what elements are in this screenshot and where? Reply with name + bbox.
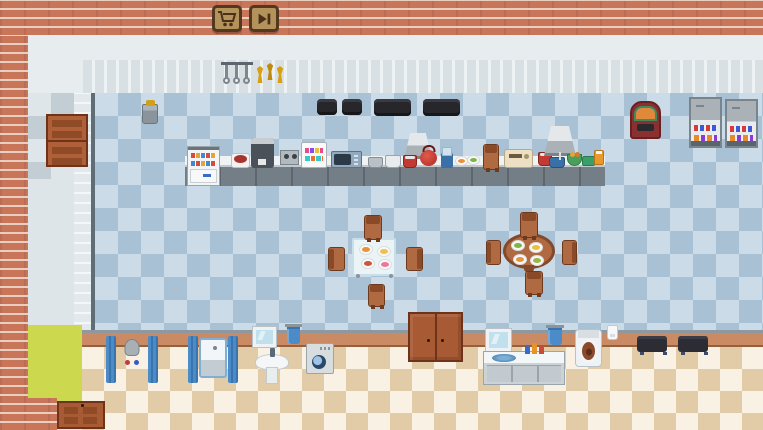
armchair-1[interactable] (317, 99, 337, 115)
shower-curtain (106, 336, 116, 383)
utensil-rack (221, 62, 253, 86)
plate-food (512, 241, 524, 250)
washing-machine[interactable] (306, 343, 334, 374)
plate-food (514, 255, 526, 264)
faucet (270, 348, 275, 357)
hall-double-door[interactable] (408, 312, 463, 362)
dining-table-square[interactable] (352, 238, 396, 276)
vending-machine-2[interactable] (725, 99, 758, 148)
shelf-items (191, 153, 216, 158)
trophy (266, 63, 274, 80)
pot-1[interactable] (368, 157, 383, 168)
pot-blue[interactable] (549, 157, 565, 168)
orange-jar[interactable] (594, 150, 604, 165)
jukebox[interactable] (630, 101, 661, 139)
bench-2[interactable] (678, 336, 708, 352)
mirror-1 (253, 327, 276, 347)
product-row (694, 125, 717, 131)
product-row (694, 135, 717, 141)
bathtub[interactable] (188, 336, 238, 383)
sofa-1[interactable] (374, 99, 411, 116)
ladle-head (223, 77, 230, 84)
pot-2[interactable] (385, 155, 401, 168)
bread-maker[interactable] (504, 149, 533, 168)
trash-bin[interactable] (142, 104, 158, 124)
pot-red-1[interactable] (403, 155, 417, 168)
shelf-items (305, 156, 323, 161)
bath-curtain (228, 336, 238, 383)
vanity-sink (492, 354, 516, 362)
countertop-stove[interactable] (280, 150, 299, 165)
product-row (730, 126, 753, 132)
trophy (276, 66, 284, 83)
rice-cooker[interactable] (231, 153, 250, 168)
microwave[interactable] (331, 151, 362, 168)
dining-table-round[interactable] (503, 233, 555, 269)
toilet[interactable] (575, 329, 602, 367)
shower[interactable] (106, 336, 158, 383)
plate (456, 157, 467, 165)
blender[interactable] (441, 153, 453, 168)
chair-8[interactable] (525, 271, 543, 295)
red-kettle[interactable] (420, 150, 437, 166)
chair-7[interactable] (562, 240, 577, 265)
plate-food (360, 245, 372, 254)
plate-food (362, 259, 374, 268)
restaurant-scene (0, 0, 763, 430)
plate-food (378, 247, 390, 256)
bathroom-vanity[interactable] (483, 351, 565, 385)
toilet-paper (607, 325, 618, 340)
serving-plates (456, 155, 482, 168)
storage-door[interactable] (57, 401, 105, 429)
plate-food (379, 260, 391, 269)
chair-6[interactable] (486, 240, 501, 265)
chair-4[interactable] (368, 284, 385, 307)
coffee-machine[interactable] (251, 138, 274, 168)
product-row (730, 135, 753, 141)
towel-2 (548, 327, 562, 345)
bottle (539, 346, 544, 354)
bathroom-mirror (486, 329, 511, 351)
bottle (525, 345, 530, 354)
ladle-head (243, 77, 250, 84)
bath-curtain (188, 336, 198, 383)
ladle-head (233, 77, 240, 84)
sofa-2[interactable] (423, 99, 460, 116)
plate-food (531, 256, 543, 265)
entity-layer (0, 0, 763, 430)
shelf-items (191, 161, 216, 166)
chair-1[interactable] (364, 215, 382, 240)
bottle (532, 343, 537, 354)
chair-2[interactable] (328, 247, 345, 271)
chair-3[interactable] (406, 247, 423, 271)
vending-machine-1[interactable] (689, 97, 722, 148)
pedestal-sink[interactable] (255, 348, 289, 384)
shower-curtain (148, 336, 158, 383)
trophy-shelf (256, 63, 284, 84)
shelf-items (305, 148, 323, 153)
plate-food (530, 243, 542, 252)
chair-5[interactable] (520, 212, 538, 238)
display-fridge[interactable] (187, 146, 220, 186)
dessert-display[interactable] (301, 142, 327, 168)
trophy (256, 66, 264, 83)
kitchen-side-door[interactable] (46, 114, 88, 167)
bench-1[interactable] (637, 336, 667, 352)
toilet-seat (579, 339, 598, 363)
armchair-2[interactable] (342, 99, 362, 115)
counter-chair[interactable] (483, 144, 499, 170)
plate (468, 156, 479, 164)
towel-1 (287, 326, 300, 344)
